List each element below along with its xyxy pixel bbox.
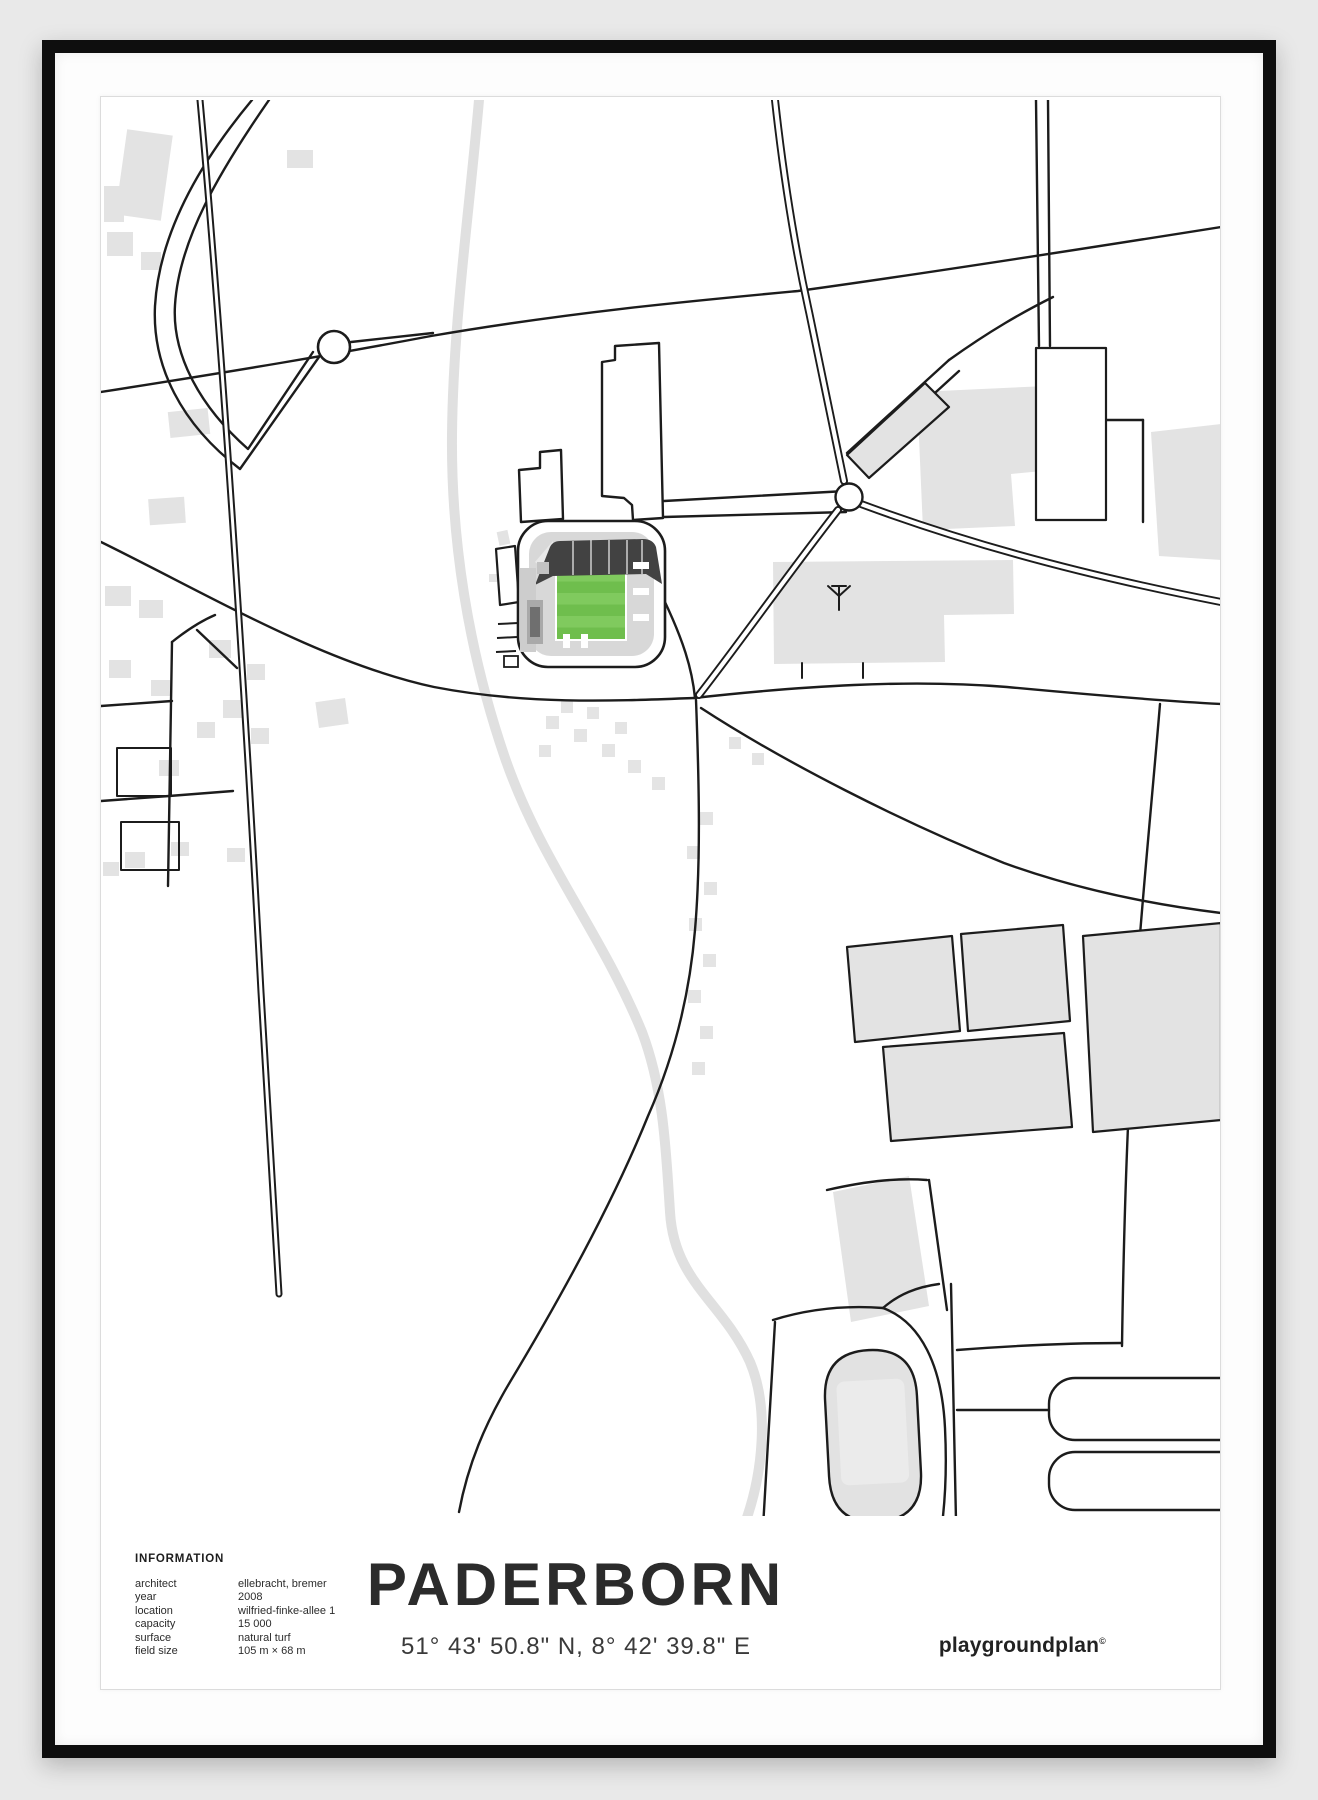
athletics-track [823, 1348, 924, 1516]
poster-coordinates: 51° 43' 50.8" N, 8° 42' 39.8" E [276, 1633, 876, 1661]
info-row: capacity 15 000 [135, 1618, 335, 1631]
info-label: location [135, 1605, 238, 1618]
coords-block: 51° 43' 50.8" N, 8° 42' 39.8" E [276, 1633, 876, 1661]
map-area [101, 100, 1220, 1516]
map-svg [101, 100, 1220, 1516]
railway [200, 100, 279, 1294]
brand-block: playgroundplan© [901, 1634, 1106, 1658]
stream [452, 100, 762, 1516]
roundabout-east [836, 484, 863, 511]
poster-paper: INFORMATION architect ellebracht, bremer… [100, 96, 1221, 1690]
brand-mark: © [1099, 1636, 1106, 1646]
info-value: 15 000 [238, 1618, 272, 1631]
info-label: capacity [135, 1618, 238, 1631]
roundabout-west [318, 331, 350, 363]
info-label: field size [135, 1645, 238, 1658]
stadium [496, 521, 665, 667]
title-block: PADERBORN [276, 1555, 876, 1615]
info-label: surface [135, 1632, 238, 1645]
poster-title: PADERBORN [276, 1555, 876, 1615]
info-label: year [135, 1591, 238, 1604]
roundabouts [318, 331, 863, 511]
stadium-west-steps [496, 623, 518, 652]
poster-frame: INFORMATION architect ellebracht, bremer… [42, 40, 1276, 1758]
house-squares [539, 701, 764, 1075]
brand-logo: playgroundplan© [939, 1634, 1106, 1657]
roads [101, 100, 1220, 1516]
info-value: 2008 [238, 1591, 262, 1604]
info-label: architect [135, 1578, 238, 1591]
